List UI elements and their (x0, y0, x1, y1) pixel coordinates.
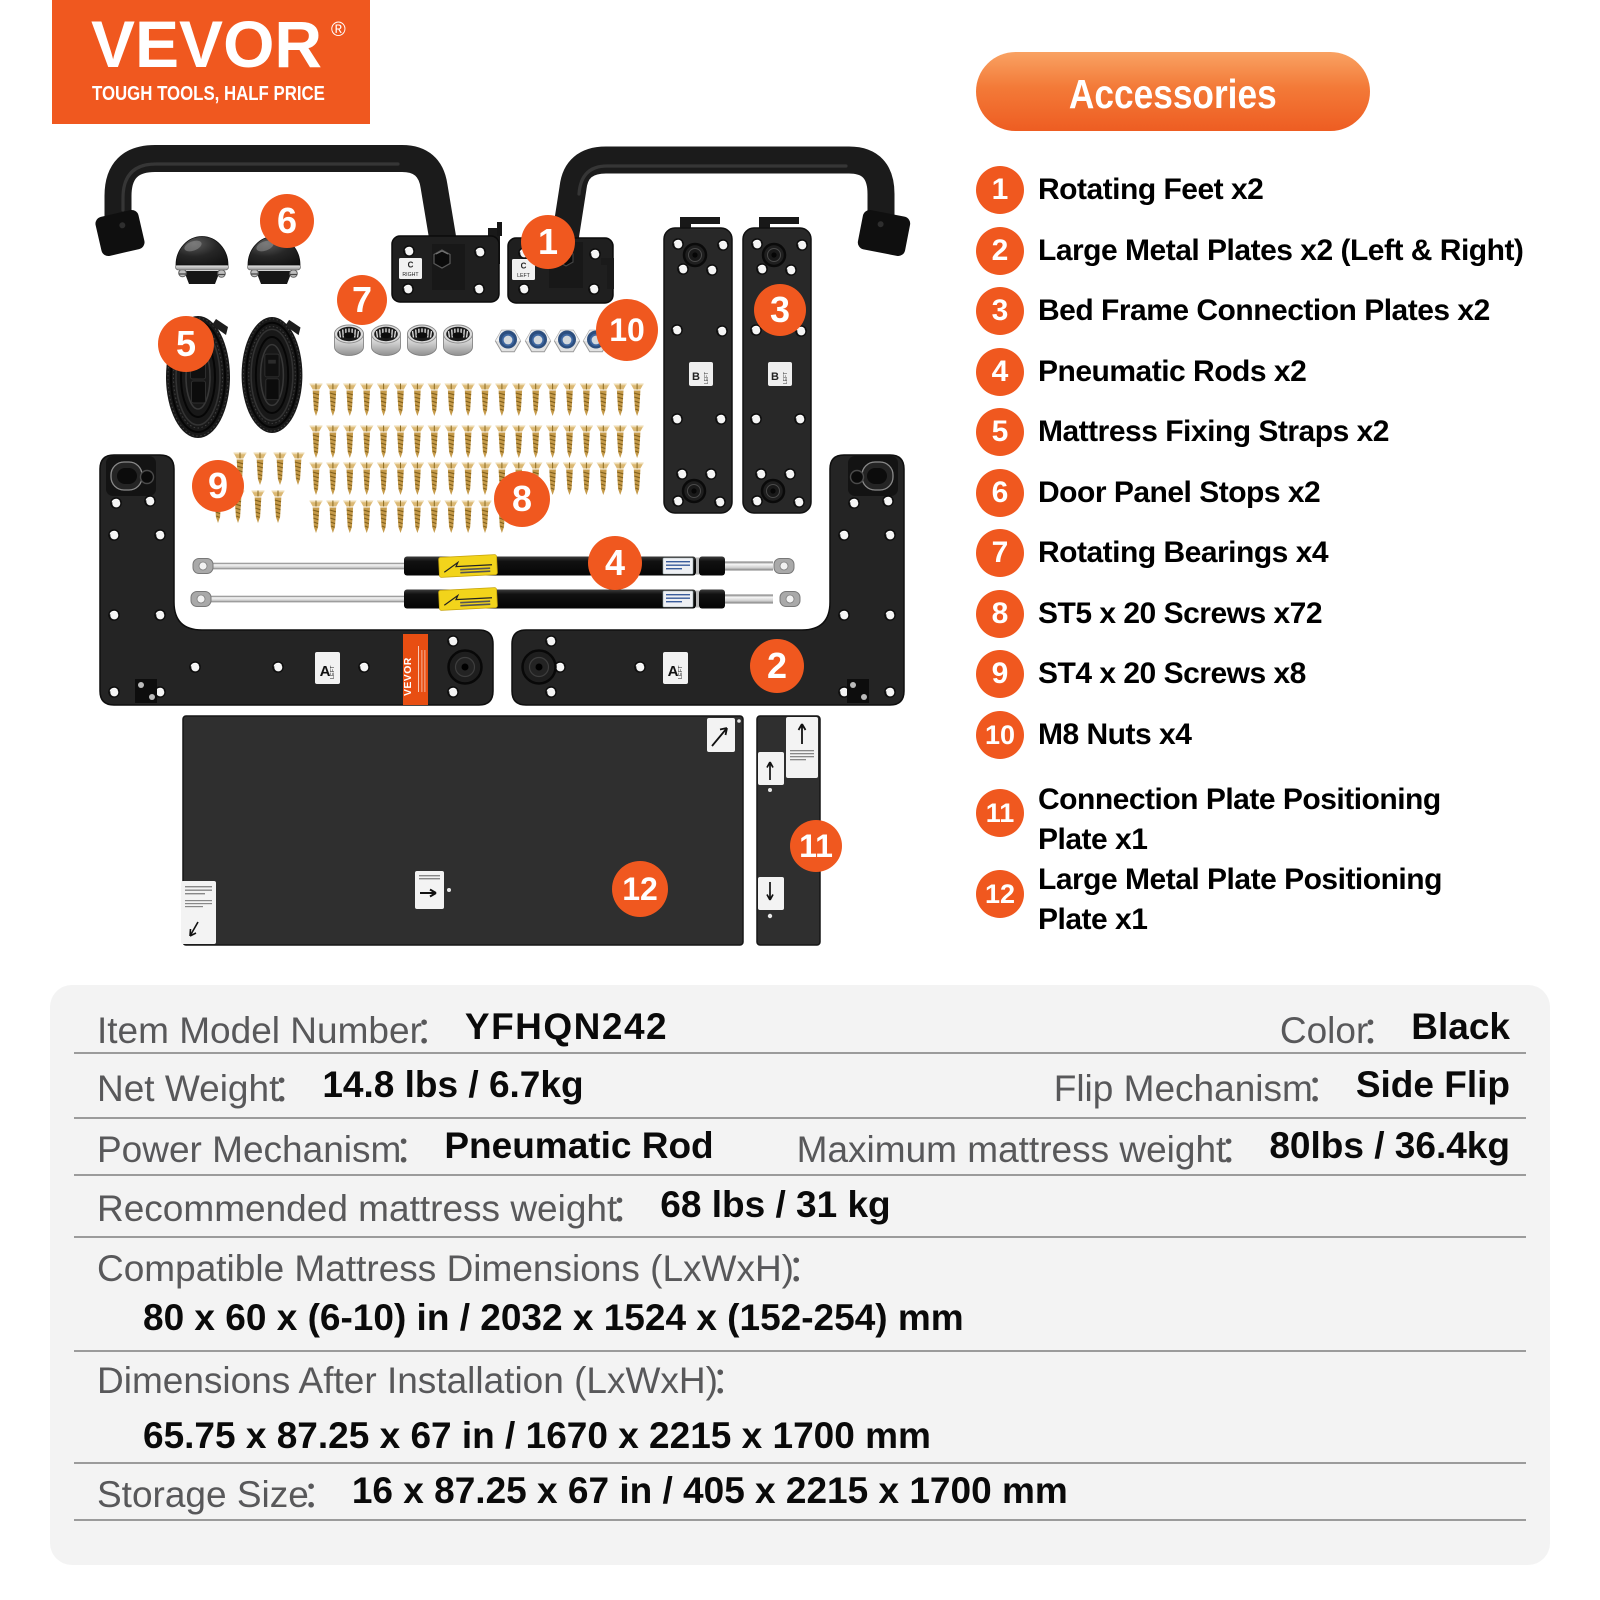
svg-text:11: 11 (799, 828, 833, 864)
svg-text:8: 8 (512, 478, 532, 519)
svg-text:6: 6 (277, 200, 297, 241)
svg-text:LEFT: LEFT (678, 665, 684, 679)
svg-text:C: C (521, 262, 527, 271)
svg-text:5: 5 (176, 323, 196, 364)
svg-text:12: 12 (622, 871, 658, 907)
svg-text:LEFT: LEFT (517, 273, 531, 279)
svg-text:A: A (668, 663, 679, 680)
svg-text:4: 4 (605, 542, 625, 583)
svg-text:C: C (408, 261, 414, 270)
svg-text:1: 1 (538, 221, 558, 262)
svg-text:VEVOR: VEVOR (402, 657, 414, 696)
svg-text:3: 3 (770, 289, 790, 330)
svg-text:2: 2 (767, 645, 787, 686)
svg-text:9: 9 (208, 465, 228, 506)
svg-text:7: 7 (352, 279, 372, 320)
svg-text:LEFT: LEFT (330, 665, 336, 679)
svg-text:RIGHT: RIGHT (402, 272, 419, 278)
svg-text:10: 10 (609, 312, 645, 348)
svg-text:A: A (320, 663, 331, 680)
